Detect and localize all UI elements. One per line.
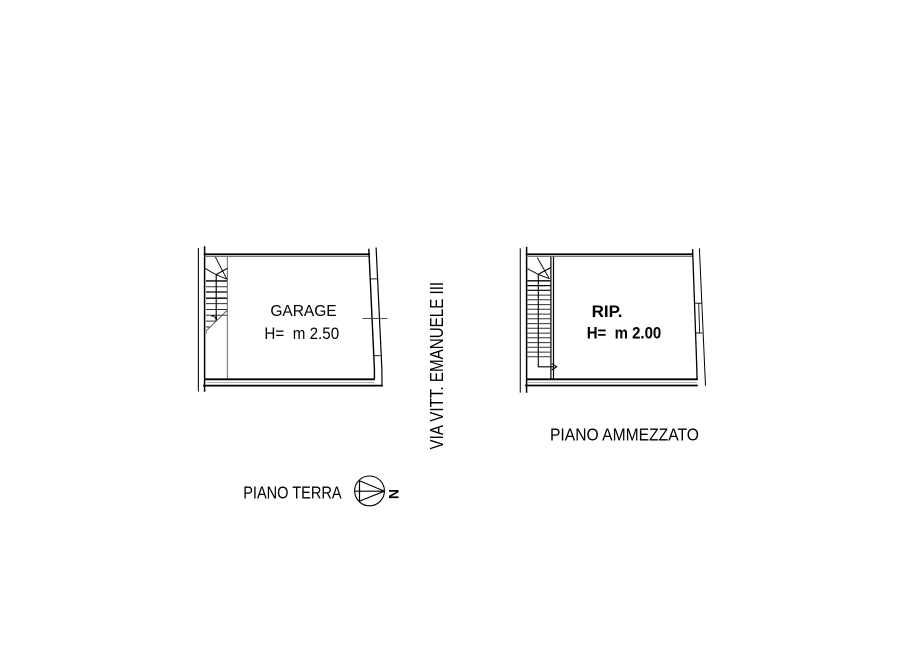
svg-text:VIA VITT. EMANUELE III: VIA VITT. EMANUELE III (427, 282, 448, 450)
svg-text:PIANO TERRA: PIANO TERRA (243, 483, 342, 503)
svg-text:H= m 2.50: H= m 2.50 (264, 324, 339, 343)
svg-text:PIANO AMMEZZATO: PIANO AMMEZZATO (550, 424, 699, 444)
svg-text:RIP.: RIP. (592, 302, 623, 321)
svg-text:GARAGE: GARAGE (270, 303, 336, 320)
svg-text:H= m 2.00: H= m 2.00 (587, 325, 662, 343)
svg-text:N: N (386, 489, 402, 499)
